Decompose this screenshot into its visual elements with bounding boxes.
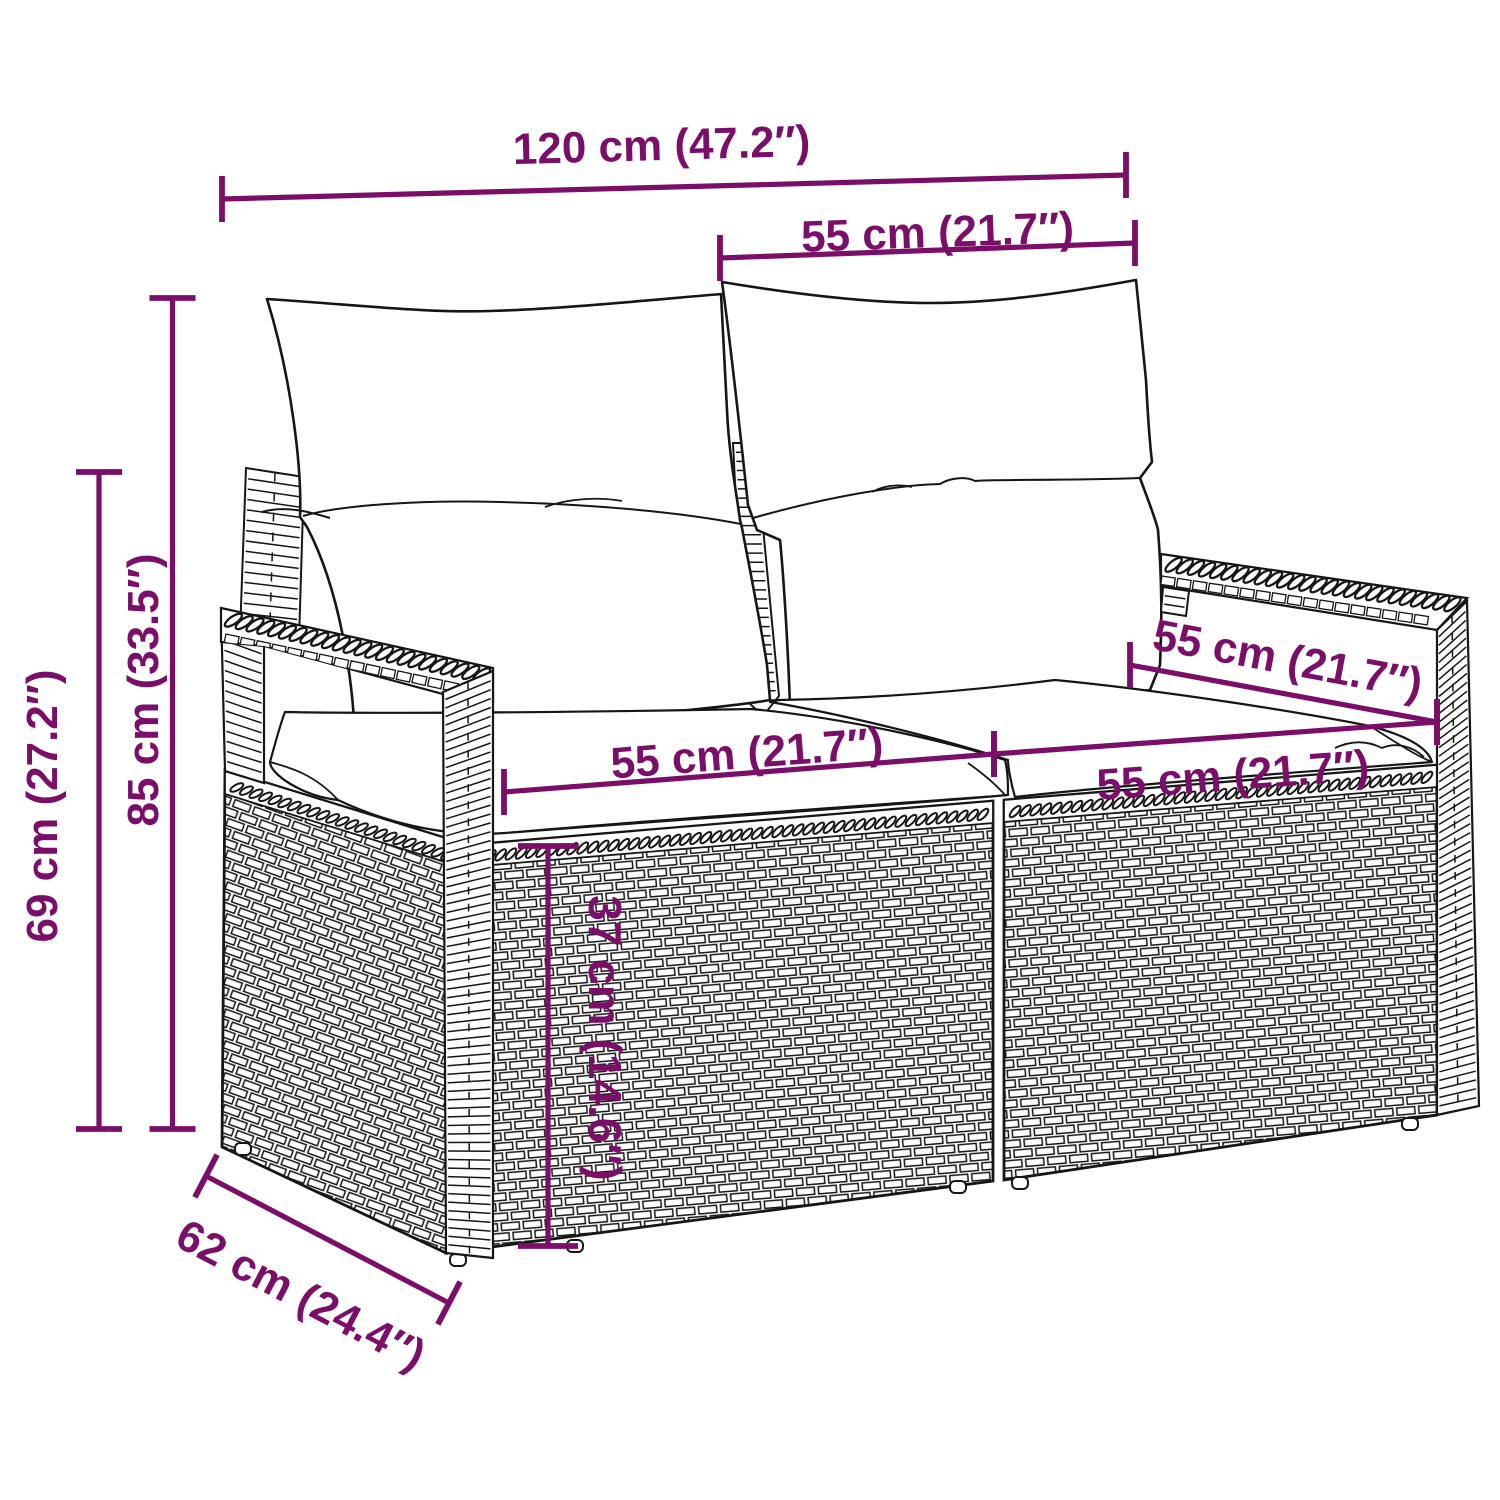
svg-text:69 cm (27.2″): 69 cm (27.2″)	[18, 669, 67, 942]
svg-text:55 cm (21.7″): 55 cm (21.7″)	[800, 203, 1075, 261]
svg-text:120 cm (47.2″): 120 cm (47.2″)	[512, 117, 811, 174]
svg-text:37 cm (14.6″): 37 cm (14.6″)	[579, 895, 631, 1180]
svg-text:85 cm (33.5″): 85 cm (33.5″)	[119, 553, 168, 826]
